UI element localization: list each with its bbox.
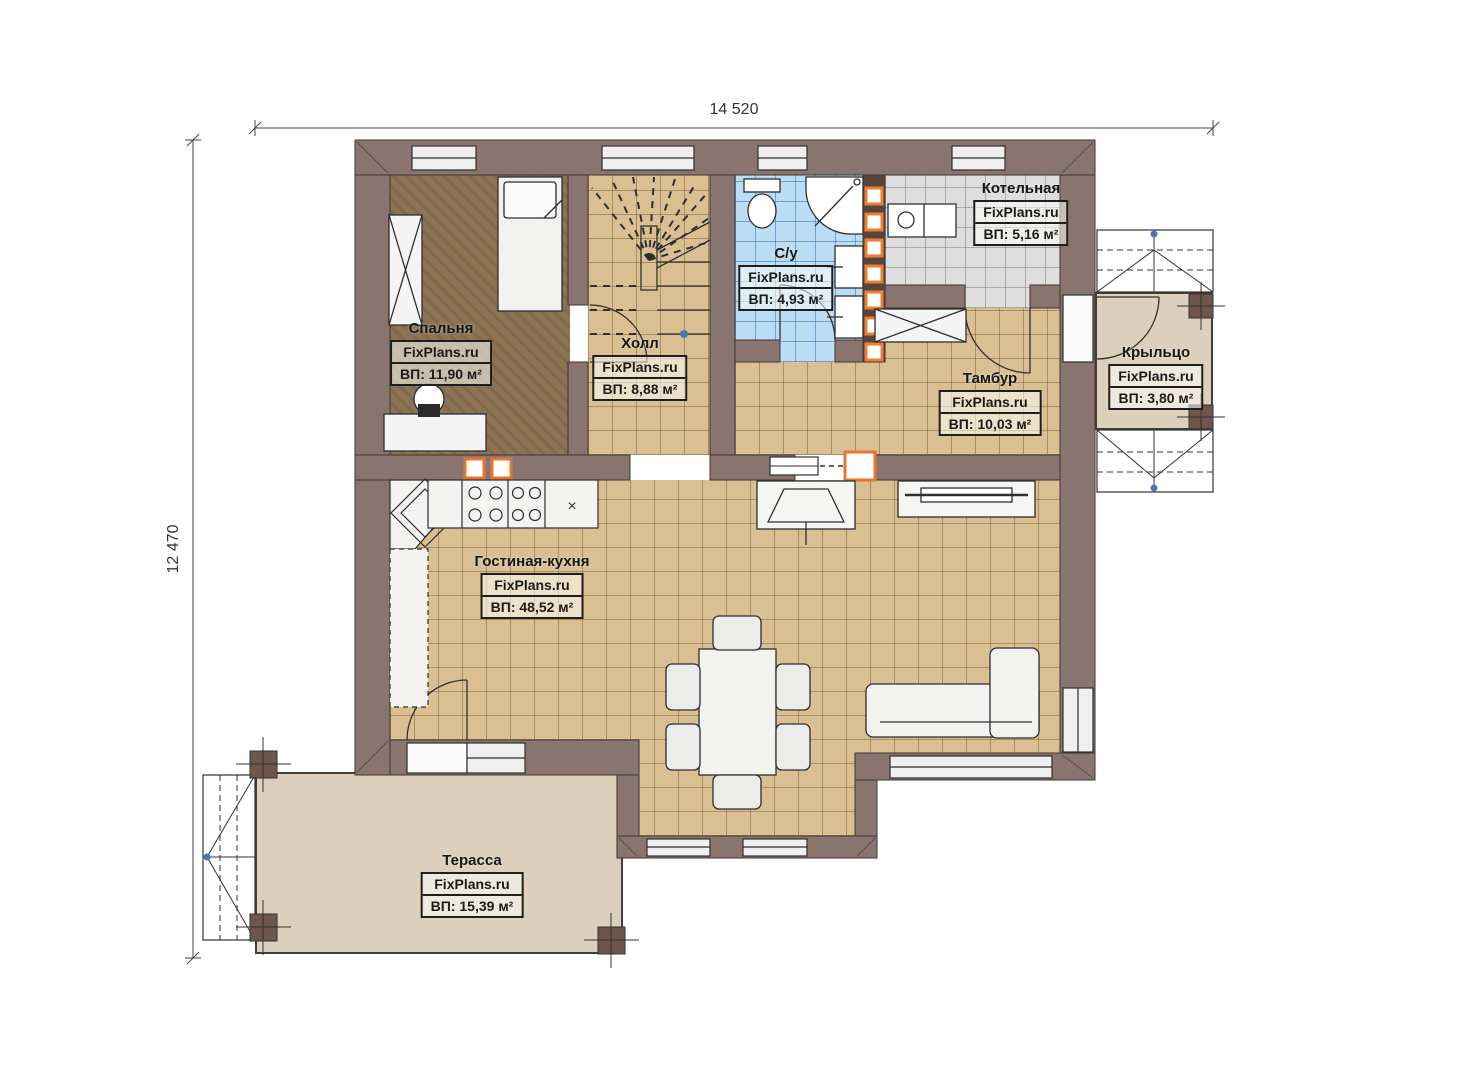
bedroom-furniture — [384, 177, 562, 451]
room-label-bathroom: С/у FixPlans.ru ВП: 4,93 м² — [738, 245, 833, 311]
room-label-hall: Холл FixPlans.ru ВП: 8,88 м² — [592, 335, 687, 401]
room-name: Тамбур — [939, 370, 1042, 387]
toilet — [744, 179, 780, 228]
desk — [384, 414, 486, 451]
watermark-text: FixPlans.ru — [594, 357, 685, 377]
room-area: ВП: 5,16 м² — [975, 222, 1066, 244]
dimension-left: 12 470 — [165, 134, 201, 964]
watermark-text: FixPlans.ru — [423, 874, 522, 894]
wall-segment — [710, 175, 735, 455]
wall-segment — [568, 175, 588, 305]
room-area: ВП: 11,90 м² — [392, 362, 490, 384]
wall-segment — [875, 455, 1060, 480]
room-name: Крыльцо — [1108, 344, 1203, 361]
entry-door-opening — [1063, 295, 1093, 362]
room-name: Гостиная-кухня — [475, 553, 590, 570]
watermark-text: FixPlans.ru — [1110, 366, 1201, 386]
room-label-porch: Крыльцо FixPlans.ru ВП: 3,80 м² — [1108, 344, 1203, 410]
room-name: С/у — [738, 245, 833, 262]
wall-segment — [835, 340, 863, 362]
watermark-text: FixPlans.ru — [392, 342, 490, 362]
wardrobe — [389, 215, 422, 325]
room-info-box: FixPlans.ru ВП: 4,93 м² — [738, 265, 833, 311]
boiler-unit — [888, 204, 956, 237]
window — [602, 146, 694, 170]
room-info-box: FixPlans.ru ВП: 15,39 м² — [421, 872, 524, 918]
room-name: Котельная — [973, 180, 1068, 197]
wall-segment — [617, 775, 639, 836]
room-label-bedroom: Спальня FixPlans.ru ВП: 11,90 м² — [390, 320, 492, 386]
room-area: ВП: 15,39 м² — [423, 894, 522, 916]
sofa — [866, 648, 1039, 738]
room-info-box: FixPlans.ru ВП: 5,16 м² — [973, 200, 1068, 246]
window — [412, 146, 476, 170]
terrace-steps — [203, 775, 255, 940]
watermark-text: FixPlans.ru — [740, 267, 831, 287]
wall-segment — [735, 340, 780, 362]
window — [467, 743, 525, 773]
post — [584, 913, 639, 968]
wall-segment — [1030, 285, 1060, 308]
room-area: ВП: 4,93 м² — [740, 287, 831, 309]
room-info-box: FixPlans.ru ВП: 8,88 м² — [592, 355, 687, 401]
dining-table — [699, 649, 776, 775]
dimension-top-value: 14 520 — [710, 101, 759, 118]
watermark-text: FixPlans.ru — [941, 392, 1040, 412]
room-area: ВП: 3,80 м² — [1110, 386, 1201, 408]
plan-linework: text{font-family:"Liberation Sans",sans-… — [0, 0, 1473, 1080]
wall-segment — [855, 780, 877, 836]
boiler-door-arc — [965, 308, 1030, 373]
window — [647, 839, 710, 856]
room-label-vestibule: Тамбур FixPlans.ru ВП: 10,03 м² — [939, 370, 1042, 436]
stairs — [590, 177, 710, 338]
side-counter — [390, 549, 428, 707]
room-name: Терасса — [421, 852, 524, 869]
room-area: ВП: 10,03 м² — [941, 412, 1040, 434]
room-name: Холл — [592, 335, 687, 352]
window — [952, 146, 1005, 170]
wall-segment — [885, 285, 965, 308]
dimension-left-value: 12 470 — [165, 524, 182, 573]
vestibule-wardrobe — [875, 309, 966, 342]
dimension-top: 14 520 — [249, 101, 1219, 136]
porch-steps-upper — [1097, 230, 1213, 292]
room-info-box: FixPlans.ru ВП: 48,52 м² — [481, 573, 584, 619]
floor-plan-canvas: text{font-family:"Liberation Sans",sans-… — [0, 0, 1473, 1080]
room-label-living-kitchen: Гостиная-кухня FixPlans.ru ВП: 48,52 м² — [475, 553, 590, 619]
room-area: ВП: 8,88 м² — [594, 377, 685, 399]
terrace-door-opening — [407, 743, 467, 773]
watermark-text: FixPlans.ru — [483, 575, 582, 595]
fireplace — [757, 481, 855, 545]
window — [758, 146, 807, 170]
desk-chair — [414, 384, 444, 417]
room-name: Спальня — [390, 320, 492, 337]
window — [743, 839, 807, 856]
porch-steps-lower — [1097, 430, 1213, 492]
room-info-box: FixPlans.ru ВП: 11,90 м² — [390, 340, 492, 386]
bed — [498, 177, 562, 311]
watermark-text: FixPlans.ru — [975, 202, 1066, 222]
room-area: ВП: 48,52 м² — [483, 595, 582, 617]
room-label-terrace: Терасса FixPlans.ru ВП: 15,39 м² — [421, 852, 524, 918]
corner-shower — [806, 177, 863, 234]
room-label-boiler-room: Котельная FixPlans.ru ВП: 5,16 м² — [973, 180, 1068, 246]
window — [1063, 688, 1093, 752]
room-info-box: FixPlans.ru ВП: 3,80 м² — [1108, 364, 1203, 410]
wall-segment — [568, 362, 588, 455]
fridge-mark: × — [567, 498, 576, 515]
tv-console — [898, 481, 1035, 517]
stairs-treads — [657, 222, 710, 334]
window — [890, 756, 1052, 778]
room-info-box: FixPlans.ru ВП: 10,03 м² — [939, 390, 1042, 436]
